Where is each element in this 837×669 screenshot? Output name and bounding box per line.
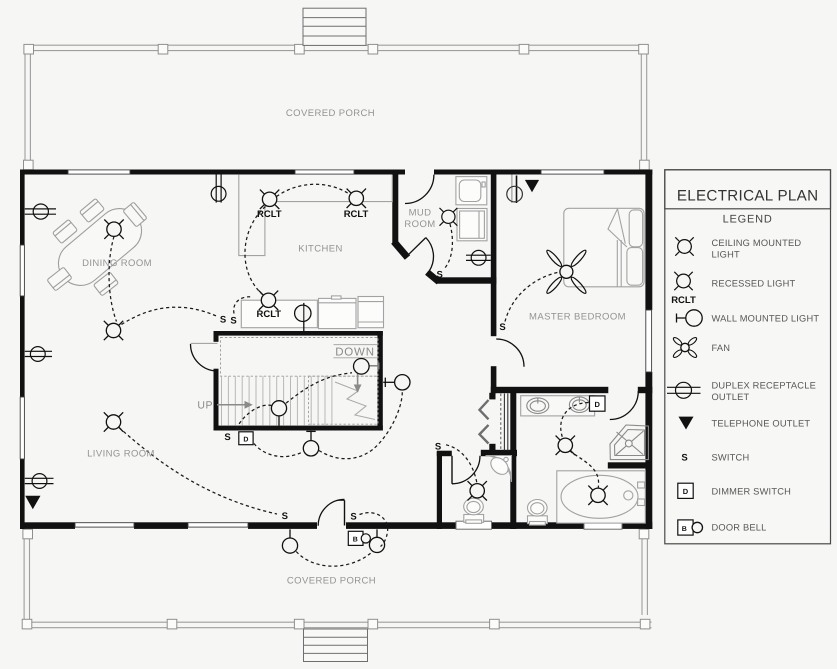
svg-text:ELECTRICAL PLAN: ELECTRICAL PLAN <box>677 188 819 205</box>
svg-text:COVERED PORCH: COVERED PORCH <box>287 575 376 586</box>
svg-text:S: S <box>282 511 288 522</box>
svg-text:COVERED PORCH: COVERED PORCH <box>286 108 375 119</box>
svg-text:DUPLEX RECEPTACLE: DUPLEX RECEPTACLE <box>712 380 817 390</box>
svg-text:CEILING MOUNTED: CEILING MOUNTED <box>712 238 802 248</box>
svg-text:FAN: FAN <box>712 343 731 353</box>
svg-text:WALL MOUNTED LIGHT: WALL MOUNTED LIGHT <box>712 313 820 323</box>
svg-text:OUTLET: OUTLET <box>712 392 750 402</box>
svg-text:DOWN: DOWN <box>335 346 375 358</box>
svg-text:LEGEND: LEGEND <box>723 214 773 226</box>
svg-text:S: S <box>435 442 441 453</box>
svg-text:TELEPHONE OUTLET: TELEPHONE OUTLET <box>712 418 811 428</box>
svg-text:DOOR BELL: DOOR BELL <box>712 523 767 533</box>
svg-text:LIGHT: LIGHT <box>712 249 740 259</box>
svg-text:S: S <box>681 453 687 464</box>
svg-text:B: B <box>682 526 687 533</box>
svg-text:KITCHEN: KITCHEN <box>298 244 343 255</box>
svg-text:D: D <box>243 437 248 444</box>
svg-text:MUD: MUD <box>409 208 432 219</box>
svg-text:RCLT: RCLT <box>344 209 369 220</box>
svg-text:S: S <box>230 316 236 327</box>
svg-text:DINING ROOM: DINING ROOM <box>82 258 152 269</box>
svg-text:RCLT: RCLT <box>256 309 281 320</box>
svg-text:ROOM: ROOM <box>404 219 435 230</box>
svg-text:MASTER BEDROOM: MASTER BEDROOM <box>529 311 626 322</box>
svg-text:RCLT: RCLT <box>671 295 696 306</box>
svg-text:UP: UP <box>197 399 213 411</box>
svg-text:S: S <box>437 269 443 280</box>
svg-text:S: S <box>499 322 505 333</box>
svg-text:S: S <box>350 512 356 523</box>
svg-text:SWITCH: SWITCH <box>712 452 750 462</box>
svg-text:D: D <box>683 487 689 496</box>
svg-text:D: D <box>594 400 600 409</box>
svg-text:S: S <box>220 314 226 325</box>
svg-text:LIVING ROOM: LIVING ROOM <box>87 449 155 460</box>
svg-text:RECESSED LIGHT: RECESSED LIGHT <box>712 278 796 288</box>
svg-text:S: S <box>224 432 230 443</box>
svg-text:B: B <box>353 536 358 543</box>
svg-text:DIMMER SWITCH: DIMMER SWITCH <box>712 486 792 496</box>
